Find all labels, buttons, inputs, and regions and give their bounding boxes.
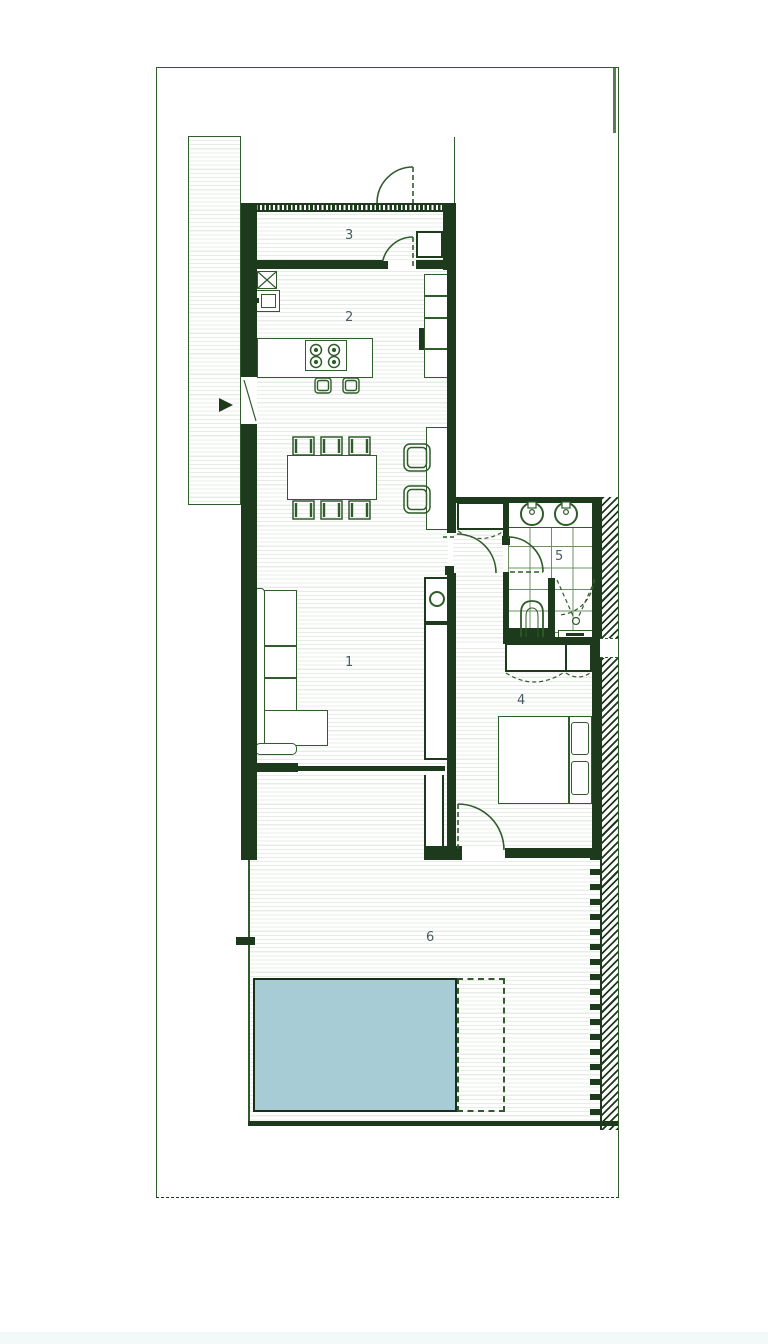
dining-side-counter — [426, 427, 448, 530]
sliding-door-panel-1 — [243, 763, 298, 772]
tv-wall-lower — [424, 623, 449, 760]
terrace-south-edge — [248, 1121, 618, 1126]
wall-house-east — [447, 268, 456, 533]
cabinet-divider-3 — [425, 348, 447, 350]
wall-house-west — [241, 203, 257, 860]
cooktop — [305, 340, 347, 371]
hall-cabinet — [457, 502, 505, 530]
cabinet-divider-1 — [425, 295, 447, 297]
porch-floor — [250, 772, 448, 858]
entry-door-opening — [383, 260, 416, 269]
floor-plan-canvas: 1 2 3 4 5 6 — [0, 0, 768, 1344]
entry-closet — [416, 231, 443, 258]
plot-boundary-top-right-thick — [613, 67, 616, 133]
sofa-seats — [264, 590, 297, 712]
room-label-6: 6 — [426, 930, 434, 945]
terrace-west-edge — [248, 858, 250, 1126]
sofa-ottoman — [255, 743, 297, 755]
wall-bathroom-south — [503, 637, 600, 644]
room-label-2: 2 — [345, 310, 353, 325]
room-label-4: 4 — [517, 693, 525, 708]
dining-table — [287, 455, 377, 500]
vanity-counter — [508, 503, 594, 528]
wardrobe-divider — [565, 644, 567, 671]
pillow-2 — [571, 761, 589, 795]
wall-porch-foot — [424, 846, 462, 860]
sofa-seat-divider-2 — [265, 677, 296, 679]
cabinet-handle — [419, 328, 424, 350]
pool-deck-dashed — [457, 978, 505, 1112]
wall-living-bedroom — [447, 573, 456, 848]
wall-toilet-back — [505, 628, 553, 637]
cabinet-divider-2 — [425, 317, 447, 319]
wall-annex-north — [453, 497, 600, 503]
pillow-1 — [571, 722, 589, 755]
sofa-seat-divider-1 — [265, 645, 296, 647]
wall-bathroom-west-upper — [503, 503, 509, 537]
fence-posts — [590, 854, 601, 1126]
kitchen-cabinet-column — [424, 274, 448, 378]
bed-pillow-divider — [568, 717, 570, 803]
wall-house-east-upper — [443, 203, 456, 270]
boundary-wall-gap — [600, 638, 618, 658]
wall-bedroom-south-east — [505, 848, 600, 858]
sofa-chaise — [264, 710, 328, 746]
room-label-3: 3 — [345, 228, 353, 243]
shower-tray-grate — [566, 633, 584, 636]
entrance-arrow-icon — [219, 398, 233, 412]
walkway — [188, 136, 241, 505]
page-bottom-strip — [0, 1332, 768, 1344]
kitchen-sink-basin — [261, 294, 276, 308]
wall-annex-east — [592, 497, 600, 858]
entry-court-line — [454, 137, 455, 203]
room-label-1: 1 — [345, 655, 353, 670]
pool — [253, 978, 457, 1112]
boundary-wall-hatch-upper — [600, 497, 618, 638]
sliding-door-panel-2 — [296, 766, 445, 771]
terrace-gate-mark — [236, 937, 255, 945]
room-label-5: 5 — [555, 549, 563, 564]
window-west-opening — [241, 377, 257, 424]
boundary-wall-hatch-lower — [600, 658, 618, 1130]
wall-entry-south — [241, 260, 448, 269]
wall-shower-partition — [548, 578, 555, 637]
wardrobe — [505, 643, 592, 672]
wall-entry-north-hatched — [253, 203, 448, 212]
porch-column — [424, 775, 444, 848]
kitchen-tall-cabinet — [257, 271, 277, 289]
